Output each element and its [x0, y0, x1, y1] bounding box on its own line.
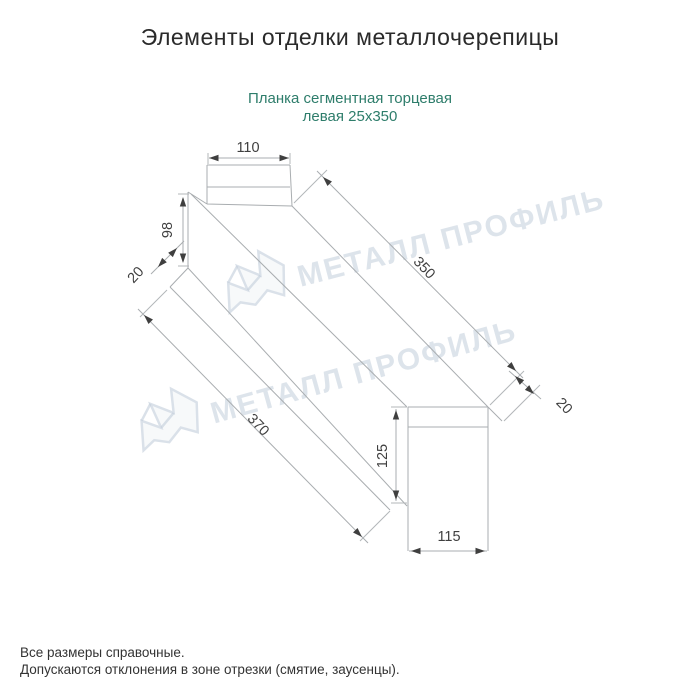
technical-drawing: МЕТАЛЛ ПРОФИЛЬ МЕТАЛЛ ПРОФИЛЬ — [0, 0, 700, 700]
dimension-top-width: 110 — [208, 140, 290, 164]
watermark-label: МЕТАЛЛ ПРОФИЛЬ — [294, 183, 608, 294]
dim-110-label: 110 — [236, 140, 259, 156]
dim-20-left-label: 20 — [125, 264, 148, 287]
document-page: Элементы отделки металлочерепицы Планка … — [0, 0, 700, 700]
footnote-line-2: Допускаются отклонения в зоне отрезки (с… — [20, 661, 680, 678]
dim-20-right-label: 20 — [553, 395, 576, 418]
dimension-right-flange: 20 — [504, 371, 575, 421]
dimension-left-height: 98 — [160, 194, 189, 266]
dim-125-label: 125 — [375, 444, 391, 468]
watermark-center: МЕТАЛЛ ПРОФИЛЬ — [217, 164, 609, 312]
footnote-line-1: Все размеры справочные. — [20, 644, 680, 661]
footnotes: Все размеры справочные. Допускаются откл… — [20, 644, 680, 678]
metall-profil-logo-icon — [130, 383, 206, 450]
dim-98-label: 98 — [160, 222, 176, 238]
dimension-end-width: 115 — [409, 529, 487, 554]
dimension-left-flange: 20 — [125, 241, 184, 287]
dim-115-label: 115 — [437, 529, 460, 545]
